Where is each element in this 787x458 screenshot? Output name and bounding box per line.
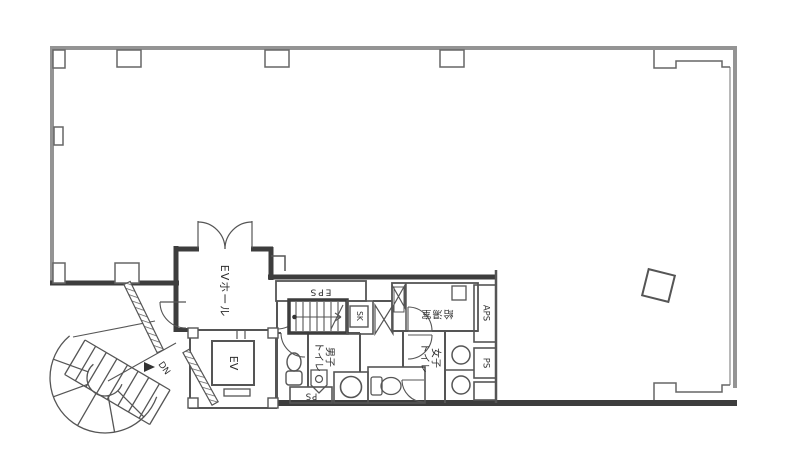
eps-label: EPS bbox=[309, 286, 332, 295]
accessible-stall bbox=[368, 367, 425, 403]
ps-lower-label: PS bbox=[305, 391, 318, 400]
double-swing-door-icon bbox=[375, 285, 405, 334]
building-outline bbox=[50, 46, 737, 403]
aps-label: APS bbox=[481, 305, 490, 321]
kitchenette-label: 給湯室 bbox=[421, 307, 454, 318]
office-column-diamond bbox=[642, 269, 675, 302]
floorplan-drawing bbox=[0, 0, 787, 458]
staircase-main bbox=[289, 300, 347, 333]
mens-toilet-label: 男子 トイレ bbox=[313, 342, 334, 372]
floorplan-page: EVホール EV EPS SK 男子 トイレ 女子 トイレ 給湯室 APS PS… bbox=[0, 0, 787, 458]
womens-toilet-label: 女子 トイレ bbox=[419, 343, 440, 373]
elevator-hall-double-door bbox=[198, 221, 252, 249]
elevator-hall-label: EVホール bbox=[218, 265, 230, 317]
ps-upper-label: PS bbox=[481, 358, 490, 369]
elevator-label: EV bbox=[227, 356, 239, 370]
sk-label: SK bbox=[355, 311, 363, 321]
